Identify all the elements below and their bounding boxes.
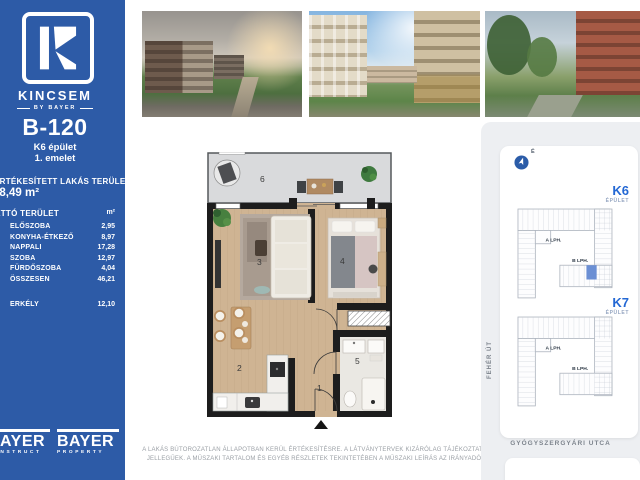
k7-stairwell-a-label: A LPH.	[546, 346, 562, 352]
balcony-chair	[297, 181, 306, 193]
net-area-table: ELŐSZOBA 2,95 KONYHA-ÉTKEZŐ 8,97 NAPPALI…	[0, 223, 115, 312]
table-row-total: ÖSSZESEN 46,21	[0, 276, 115, 287]
table-row-balcony: ERKÉLY 12,10	[0, 301, 115, 312]
room-number-living: 3	[257, 257, 262, 267]
secondary-card	[505, 458, 640, 480]
site-map-panel: É K6 ÉPÜLET A	[481, 122, 640, 480]
highlighted-unit	[586, 265, 596, 279]
logo-name: BAYER	[57, 434, 119, 449]
logo-division: CONSTRUCT	[0, 450, 50, 455]
sidebar: KINCSEM BY BAYER B-120 K6 épület 1. emel…	[0, 0, 125, 480]
room-number-hall: 1	[317, 383, 322, 393]
photo-building	[576, 11, 640, 95]
disclaimer-line-1: A LAKÁS BÚTOROZATLAN ÁLLAPOTBAN KERÜL ÉR…	[142, 447, 487, 453]
net-area-unit-header: m²	[106, 209, 115, 216]
site-map-card: É K6 ÉPÜLET A	[500, 146, 638, 438]
row-label: ÖSSZESEN	[10, 276, 50, 283]
k6-building-map: A LPH. B LPH.	[511, 208, 621, 302]
row-label: ERKÉLY	[10, 301, 39, 308]
living-window	[216, 204, 240, 209]
floor-name: 1. emelet	[0, 153, 110, 164]
unit-id: B-120	[0, 114, 110, 141]
disclaimer-line-2: JELLEGŰEK. A MŰSZAKI TARTALOM ÉS EGYÉB R…	[147, 456, 483, 462]
photo-building	[145, 41, 213, 93]
balcony-chair	[334, 181, 343, 193]
room-number-bathroom: 5	[355, 356, 360, 366]
table-row: FÜRDŐSZOBA 4,04	[0, 265, 115, 276]
building-k7-label: K7	[612, 295, 629, 310]
building-k6-label: K6	[612, 183, 629, 198]
room-number-bedroom: 4	[340, 256, 345, 266]
logo-division: PROPERTY	[57, 450, 119, 455]
street-label-left: FEHÉR ÚT	[487, 325, 497, 395]
room-number-kitchen: 2	[237, 363, 242, 373]
row-value: 12,97	[97, 255, 115, 262]
kincsem-logo	[22, 12, 94, 84]
k6-stairwell-b-label: B LPH.	[572, 258, 589, 264]
render-photo-street	[485, 11, 640, 117]
bedroom-furniture	[328, 218, 386, 298]
photo-building	[309, 15, 367, 97]
k7-stairwell-b-label: B LPH.	[572, 366, 589, 372]
photo-building	[414, 11, 480, 103]
row-label: FÜRDŐSZOBA	[10, 265, 61, 272]
photo-path	[231, 77, 258, 117]
photo-building	[214, 55, 244, 79]
room-number-balcony: 6	[260, 174, 265, 184]
disclaimer-text: A LAKÁS BÚTOROZATLAN ÁLLAPOTBAN KERÜL ÉR…	[130, 446, 500, 463]
k7-building-map: A LPH. B LPH.	[511, 316, 621, 410]
row-value: 17,28	[97, 244, 115, 251]
flyer-page: KINCSEM BY BAYER B-120 K6 épület 1. emel…	[0, 0, 640, 480]
table-row: ELŐSZOBA 2,95	[0, 223, 115, 234]
sold-area-label: ÉRTÉKESÍTETT LAKÁS TERÜLET	[0, 177, 125, 186]
row-label: NAPPALI	[10, 244, 42, 251]
building-name: K6 épület	[0, 142, 110, 153]
photo-tree	[527, 37, 557, 77]
row-value: 12,10	[97, 301, 115, 308]
k6-stairwell-a-label: A LPH.	[546, 238, 562, 244]
row-label: KONYHA-ÉTKEZŐ	[10, 234, 74, 241]
bayer-construct-logo: BAYER CONSTRUCT	[0, 429, 50, 455]
entry-arrow-icon	[314, 420, 328, 429]
row-value: 2,95	[101, 223, 115, 230]
row-label: ELŐSZOBA	[10, 223, 51, 230]
brand-tagline: BY BAYER	[0, 105, 110, 111]
photo-tree	[487, 15, 531, 75]
sold-area-value: 48,49 m²	[0, 187, 39, 199]
floor-plan: 6 3 4 2 1 5	[207, 152, 392, 432]
building-k6-type: ÉPÜLET	[606, 198, 629, 204]
table-row: SZOBA 12,97	[0, 255, 115, 266]
row-label: SZOBA	[10, 255, 36, 262]
logo-k-icon	[35, 23, 81, 73]
photo-building	[367, 66, 417, 83]
bayer-property-logo: BAYER PROPERTY	[57, 429, 119, 455]
net-area-header: NETTÓ TERÜLET	[0, 209, 59, 218]
north-label: É	[531, 149, 535, 155]
brand-name: KINCSEM	[0, 88, 110, 103]
table-row: NAPPALI 17,28	[0, 244, 115, 255]
partner-logos: BAYER CONSTRUCT BAYER PROPERTY	[0, 429, 119, 455]
radiator	[348, 311, 390, 326]
row-value: 8,97	[101, 234, 115, 241]
render-photo-courtyard	[309, 11, 480, 117]
row-value: 46,21	[97, 276, 115, 283]
photo-path	[527, 95, 583, 117]
entry-opening	[315, 411, 337, 417]
render-photo-park-avenue	[142, 11, 302, 117]
balcony-plant	[361, 166, 377, 182]
table-row: KONYHA-ÉTKEZŐ 8,97	[0, 234, 115, 245]
balcony-table	[307, 179, 333, 194]
logo-name: BAYER	[0, 434, 50, 449]
balcony-room	[208, 152, 391, 203]
compass-icon	[514, 155, 529, 170]
row-value: 4,04	[101, 265, 115, 272]
street-label-bottom: GYÓGYSZERGYÁRI UTCA	[481, 440, 640, 447]
